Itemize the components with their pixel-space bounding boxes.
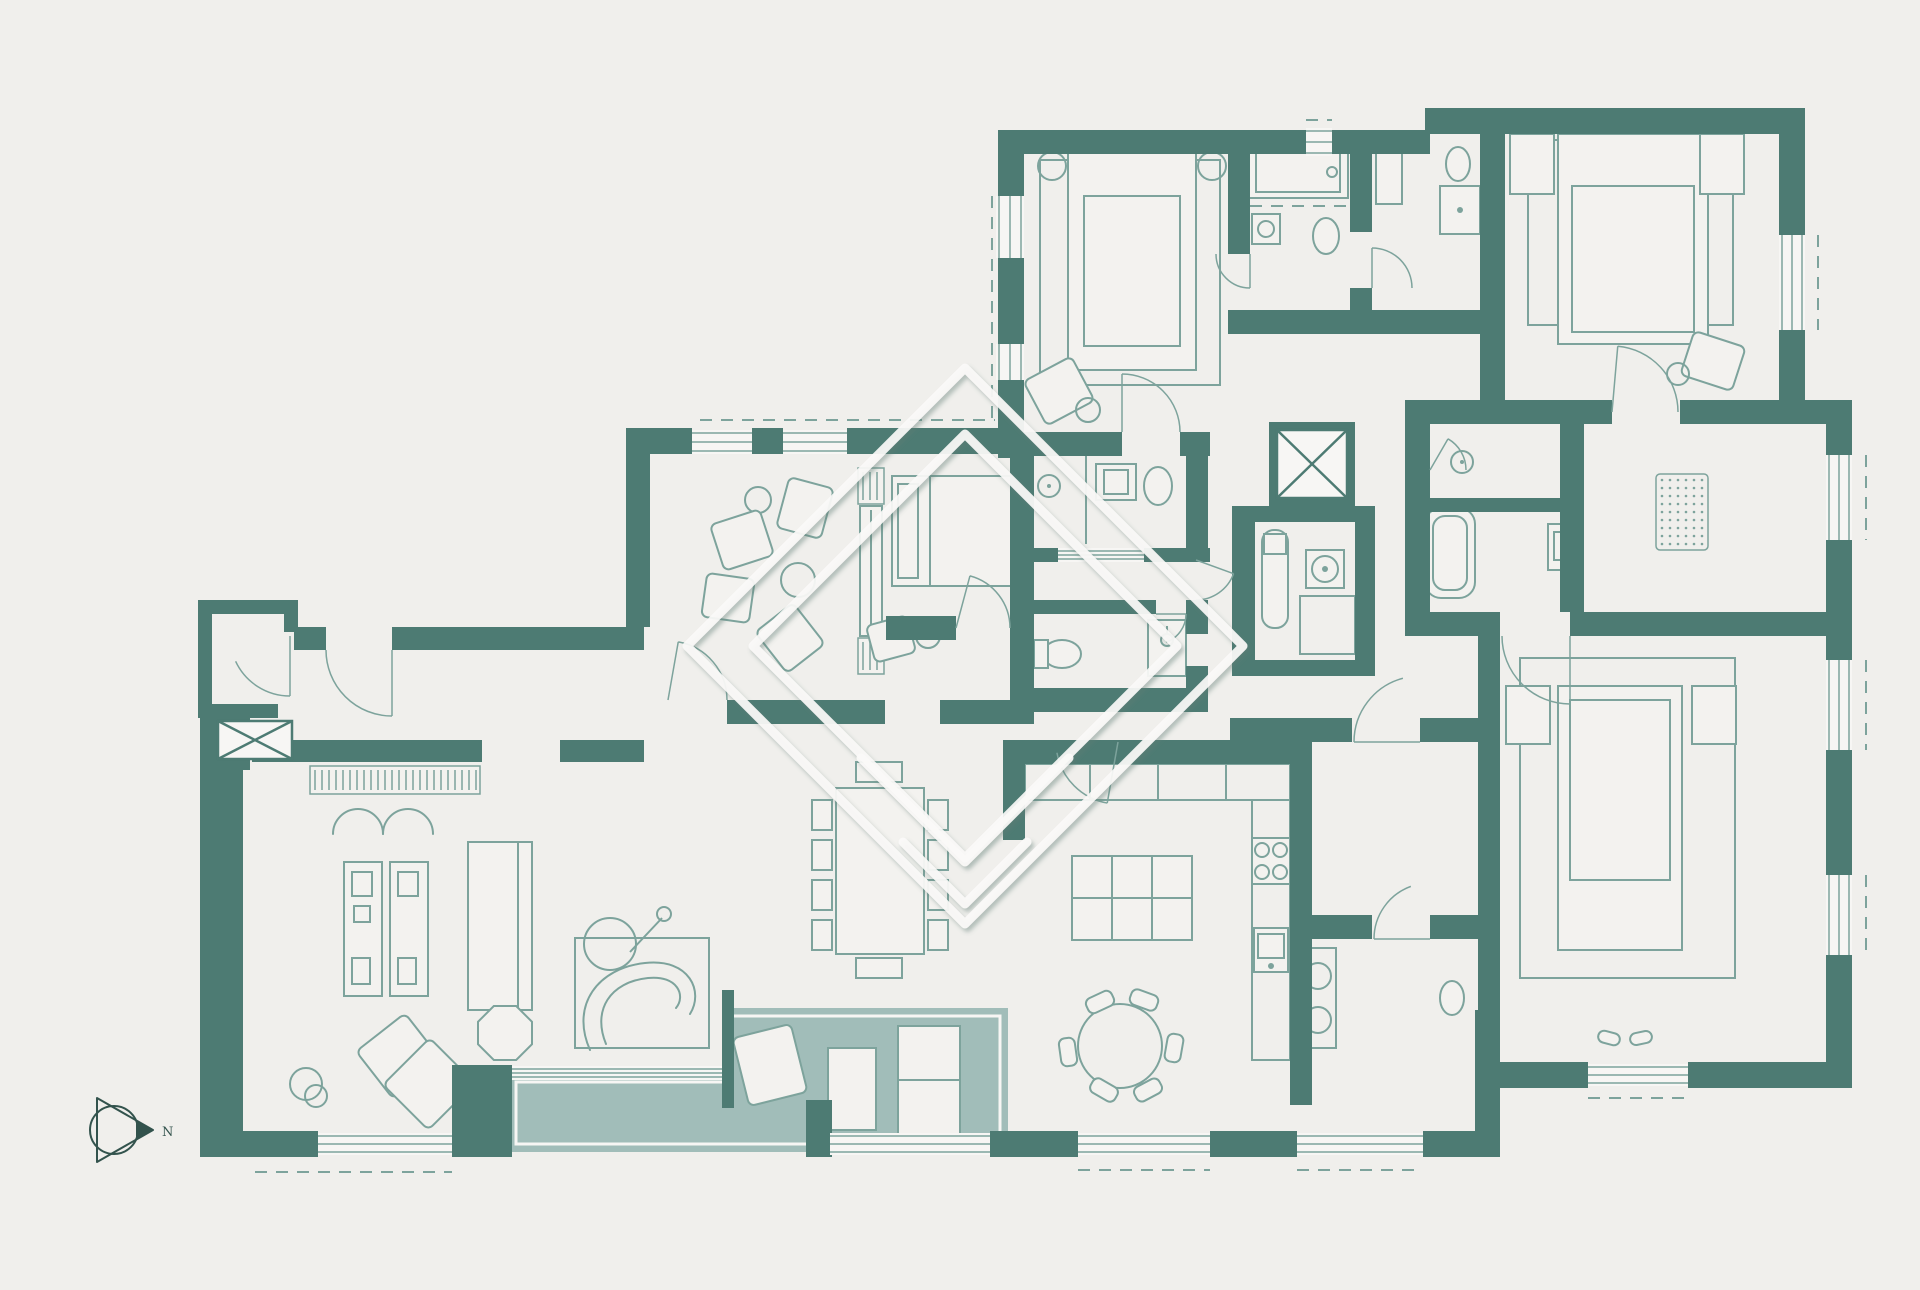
wall-suite-north-2 [1420,718,1478,742]
window-bath2-bottom [1058,548,1144,562]
wall-top-ne [1425,108,1805,134]
bath1-sink-cabinet [1252,214,1280,244]
bedroom2-nightstand-right [1700,134,1744,194]
window-top-vent [1306,128,1332,156]
floor-plan-svg: N [0,0,1920,1290]
wall-right-4 [1826,750,1852,875]
wall-top-a [998,130,1308,154]
duct-shaft-left [218,721,292,759]
wall-bath4-divider [1405,498,1560,512]
wall-dining-stub [940,700,1010,724]
wall-bedroom3-bottom [886,616,956,640]
window-master-bottom [1588,1064,1688,1086]
wall-vestibule-left [198,600,212,718]
wall-ne-bottom-left [1505,400,1612,424]
wall-dining-pier [806,1100,832,1157]
wall-left [200,770,243,1131]
wall-bath2-right [1186,432,1208,560]
wall-vestibule-top [198,600,294,614]
dining-chair-l4 [812,920,832,950]
wall-suite-north-0 [1230,718,1312,742]
wall-suitebath-bottom-r [1423,1131,1480,1157]
bedroom2-nightstand-left [1510,134,1554,194]
wall-powder-left [1010,566,1034,724]
wall-master-left [1478,636,1500,1010]
wall-laundry-right [1355,506,1375,676]
wall-hall-north-stub [294,627,326,650]
wall-kitchen-bottom-r [1210,1131,1297,1157]
wall-suitebath-north-r [1430,915,1478,939]
master-bed [1558,686,1682,950]
wall-study-top-1 [626,428,692,454]
floor-plan-page: N apartment-floor-plan [0,0,1920,1290]
bath1-toilet [1313,218,1339,254]
wall-living-pier [452,1065,512,1157]
wall-laundry-bottom [1232,660,1375,676]
living-octagon-table [478,1006,532,1060]
window-study-2 [783,430,847,454]
wall-bath4-dressing-div [1560,424,1584,612]
window-living-terrace [512,1066,722,1080]
wall-b1-left-2 [998,258,1024,344]
wall-right-2 [1826,424,1852,455]
bath2-shower-drain [1047,484,1051,488]
kitchen-sink-tap [1268,963,1274,969]
window-dressing-right [1826,455,1852,540]
wall-bath1-bottom [1228,310,1350,334]
dining-chair-l2 [812,840,832,870]
wall-ne-bottom-right [1680,400,1852,424]
window-study-1 [692,430,752,454]
suitebath-toilet [1440,981,1464,1015]
elevator-shaft [1277,430,1347,498]
master-nightstand-right [1692,686,1736,744]
window-bedroom1-left-2 [996,344,1024,380]
master-nightstand-left [1506,686,1550,744]
bath2-toilet [1144,467,1172,505]
window-kitchen-bottom [1078,1133,1210,1155]
window-bedroom2-right [1779,235,1805,330]
bath3-vanity [1376,150,1402,204]
terrace-table [828,1048,876,1130]
laundry-iron [1264,534,1286,554]
wall-living-bottom [200,1131,318,1157]
window-master-right-1 [1826,660,1852,750]
wall-kitchen-bottom-l [990,1131,1078,1157]
living-desk-2 [390,862,428,996]
wall-bath4-left [1405,424,1430,636]
bath4-shower-drain [1460,460,1464,464]
wall-bath2-bottom-l [1034,548,1058,562]
wall-bath4-top [1405,400,1505,424]
dining-chair-l3 [812,880,832,910]
wall-bath3-bottom [1350,310,1480,334]
wall-master-bottom-left [1500,1062,1588,1088]
wall-vestibule-bottom [198,704,278,718]
wall-master-bottom-right [1688,1062,1852,1088]
dining-chair-bottom [856,958,902,978]
wall-top-b [1332,130,1430,154]
bedroom2-bed [1558,134,1708,344]
wall-bath3-left-1 [1350,134,1372,232]
kitchen-chair-3 [1058,1037,1078,1067]
wall-b1-left-1 [998,130,1024,196]
wall-study-left [626,452,650,627]
window-dining-slider [830,1133,990,1155]
bedroom1-bed [1068,148,1196,370]
wall-study-top-2 [752,428,783,454]
compass-label: N [162,1125,173,1140]
wall-bedroom3-right [1010,450,1034,566]
powder-cistern [1034,640,1048,668]
wall-right-3 [1826,540,1852,660]
wall-step-column-2 [1475,1010,1500,1088]
wall-ne-left [1480,134,1505,424]
wall-right-1b [1779,330,1805,424]
window-master-right-2 [1826,875,1852,955]
bath3-drain [1457,207,1463,213]
bath3-toilet [1446,147,1470,181]
wall-bath1-left [1228,134,1250,254]
dining-chair-l1 [812,800,832,830]
window-suitebath-bottom [1297,1133,1423,1155]
window-living-bottom [318,1133,452,1155]
living-sofa [468,842,532,1010]
wall-kitchen-right [1290,742,1312,1105]
wall-suitebath-north-l [1312,915,1372,939]
wall-corridor-south [1405,612,1500,636]
wall-terrace-pillar [722,990,734,1108]
wall-living-top-2 [560,740,644,762]
dining-chair-r4 [928,920,948,950]
wall-laundry-top [1255,506,1355,522]
wall-hall-north [392,627,644,650]
window-bedroom1-left-1 [996,196,1024,258]
wall-right-1 [1779,108,1805,235]
living-console [310,766,480,794]
wall-suite-north-1 [1312,718,1352,742]
laundry-washer-dial [1322,566,1328,572]
wall-master-top [1570,612,1826,636]
living-desk-1 [344,862,382,996]
